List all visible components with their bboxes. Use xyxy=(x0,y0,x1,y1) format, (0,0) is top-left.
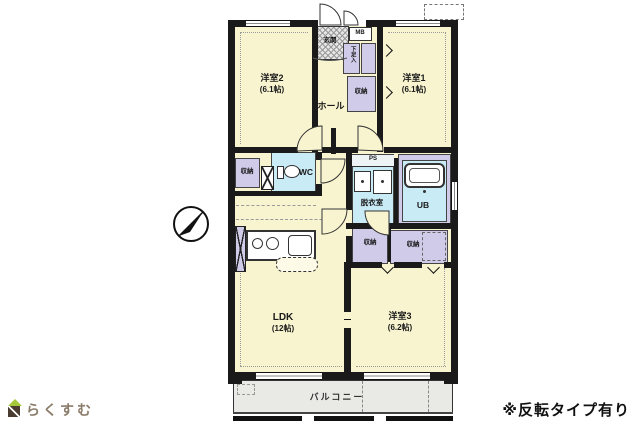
western1-name: 洋室1 xyxy=(402,73,426,85)
room-label-entrance: 玄関 xyxy=(324,37,337,45)
western3-name: 洋室3 xyxy=(388,311,412,323)
entrance-door-arc xyxy=(320,4,341,25)
reverse-type-note: ※反転タイプ有り xyxy=(502,399,630,420)
western3-size: (6.2帖) xyxy=(388,323,412,333)
room-label-ldk: LDK (12帖) xyxy=(272,311,294,334)
label-closet-bottom-center: 収納 xyxy=(364,239,377,247)
room-label-western2: 洋室2 (6.1帖) xyxy=(260,73,284,95)
label-meter-box: MB xyxy=(355,30,364,38)
label-closet-western1: 収納 xyxy=(355,88,368,96)
ldk-size: (12帖) xyxy=(272,324,294,334)
room-label-western1: 洋室1 (6.1帖) xyxy=(402,73,426,95)
entrance-step-line xyxy=(313,58,347,61)
room-label-wc: WC xyxy=(299,167,313,178)
dressing-door-arc xyxy=(365,211,389,235)
label-closet-mid-left: 収納 xyxy=(241,168,254,176)
room-label-balcony: バルコニー xyxy=(310,392,365,404)
western2-door-arc xyxy=(297,126,322,151)
label-shoe-box: 下足入 xyxy=(348,46,355,63)
label-closet-bottom-right: 収納 xyxy=(407,241,420,249)
house-roof-icon xyxy=(8,399,22,406)
floorplan-page: { "meta": { "note": "※反転タイプ有り", "logo_te… xyxy=(0,0,640,425)
western2-size: (6.1帖) xyxy=(260,85,284,95)
house-icon xyxy=(8,399,22,417)
door-arcs xyxy=(0,0,640,425)
ldk-name: LDK xyxy=(272,311,294,324)
western1-door-arc xyxy=(358,126,383,151)
site-logo: らくすむ xyxy=(8,399,94,417)
room-label-ub: UB xyxy=(417,200,429,211)
western2-name: 洋室2 xyxy=(260,73,284,85)
room-label-western3: 洋室3 (6.2帖) xyxy=(388,311,412,333)
wc-door-arc xyxy=(321,159,345,183)
western1-size: (6.1帖) xyxy=(402,85,426,95)
entrance-door-arc-small xyxy=(344,11,358,25)
room-label-dressing: 脱衣室 xyxy=(361,198,384,208)
label-pipe-space: PS xyxy=(369,156,377,164)
compass-icon xyxy=(170,203,212,245)
house-body-icon xyxy=(8,406,20,417)
logo-text: らくすむ xyxy=(26,403,94,417)
room-label-hall: ホール xyxy=(317,101,344,113)
ldk-door-arc xyxy=(322,209,347,234)
